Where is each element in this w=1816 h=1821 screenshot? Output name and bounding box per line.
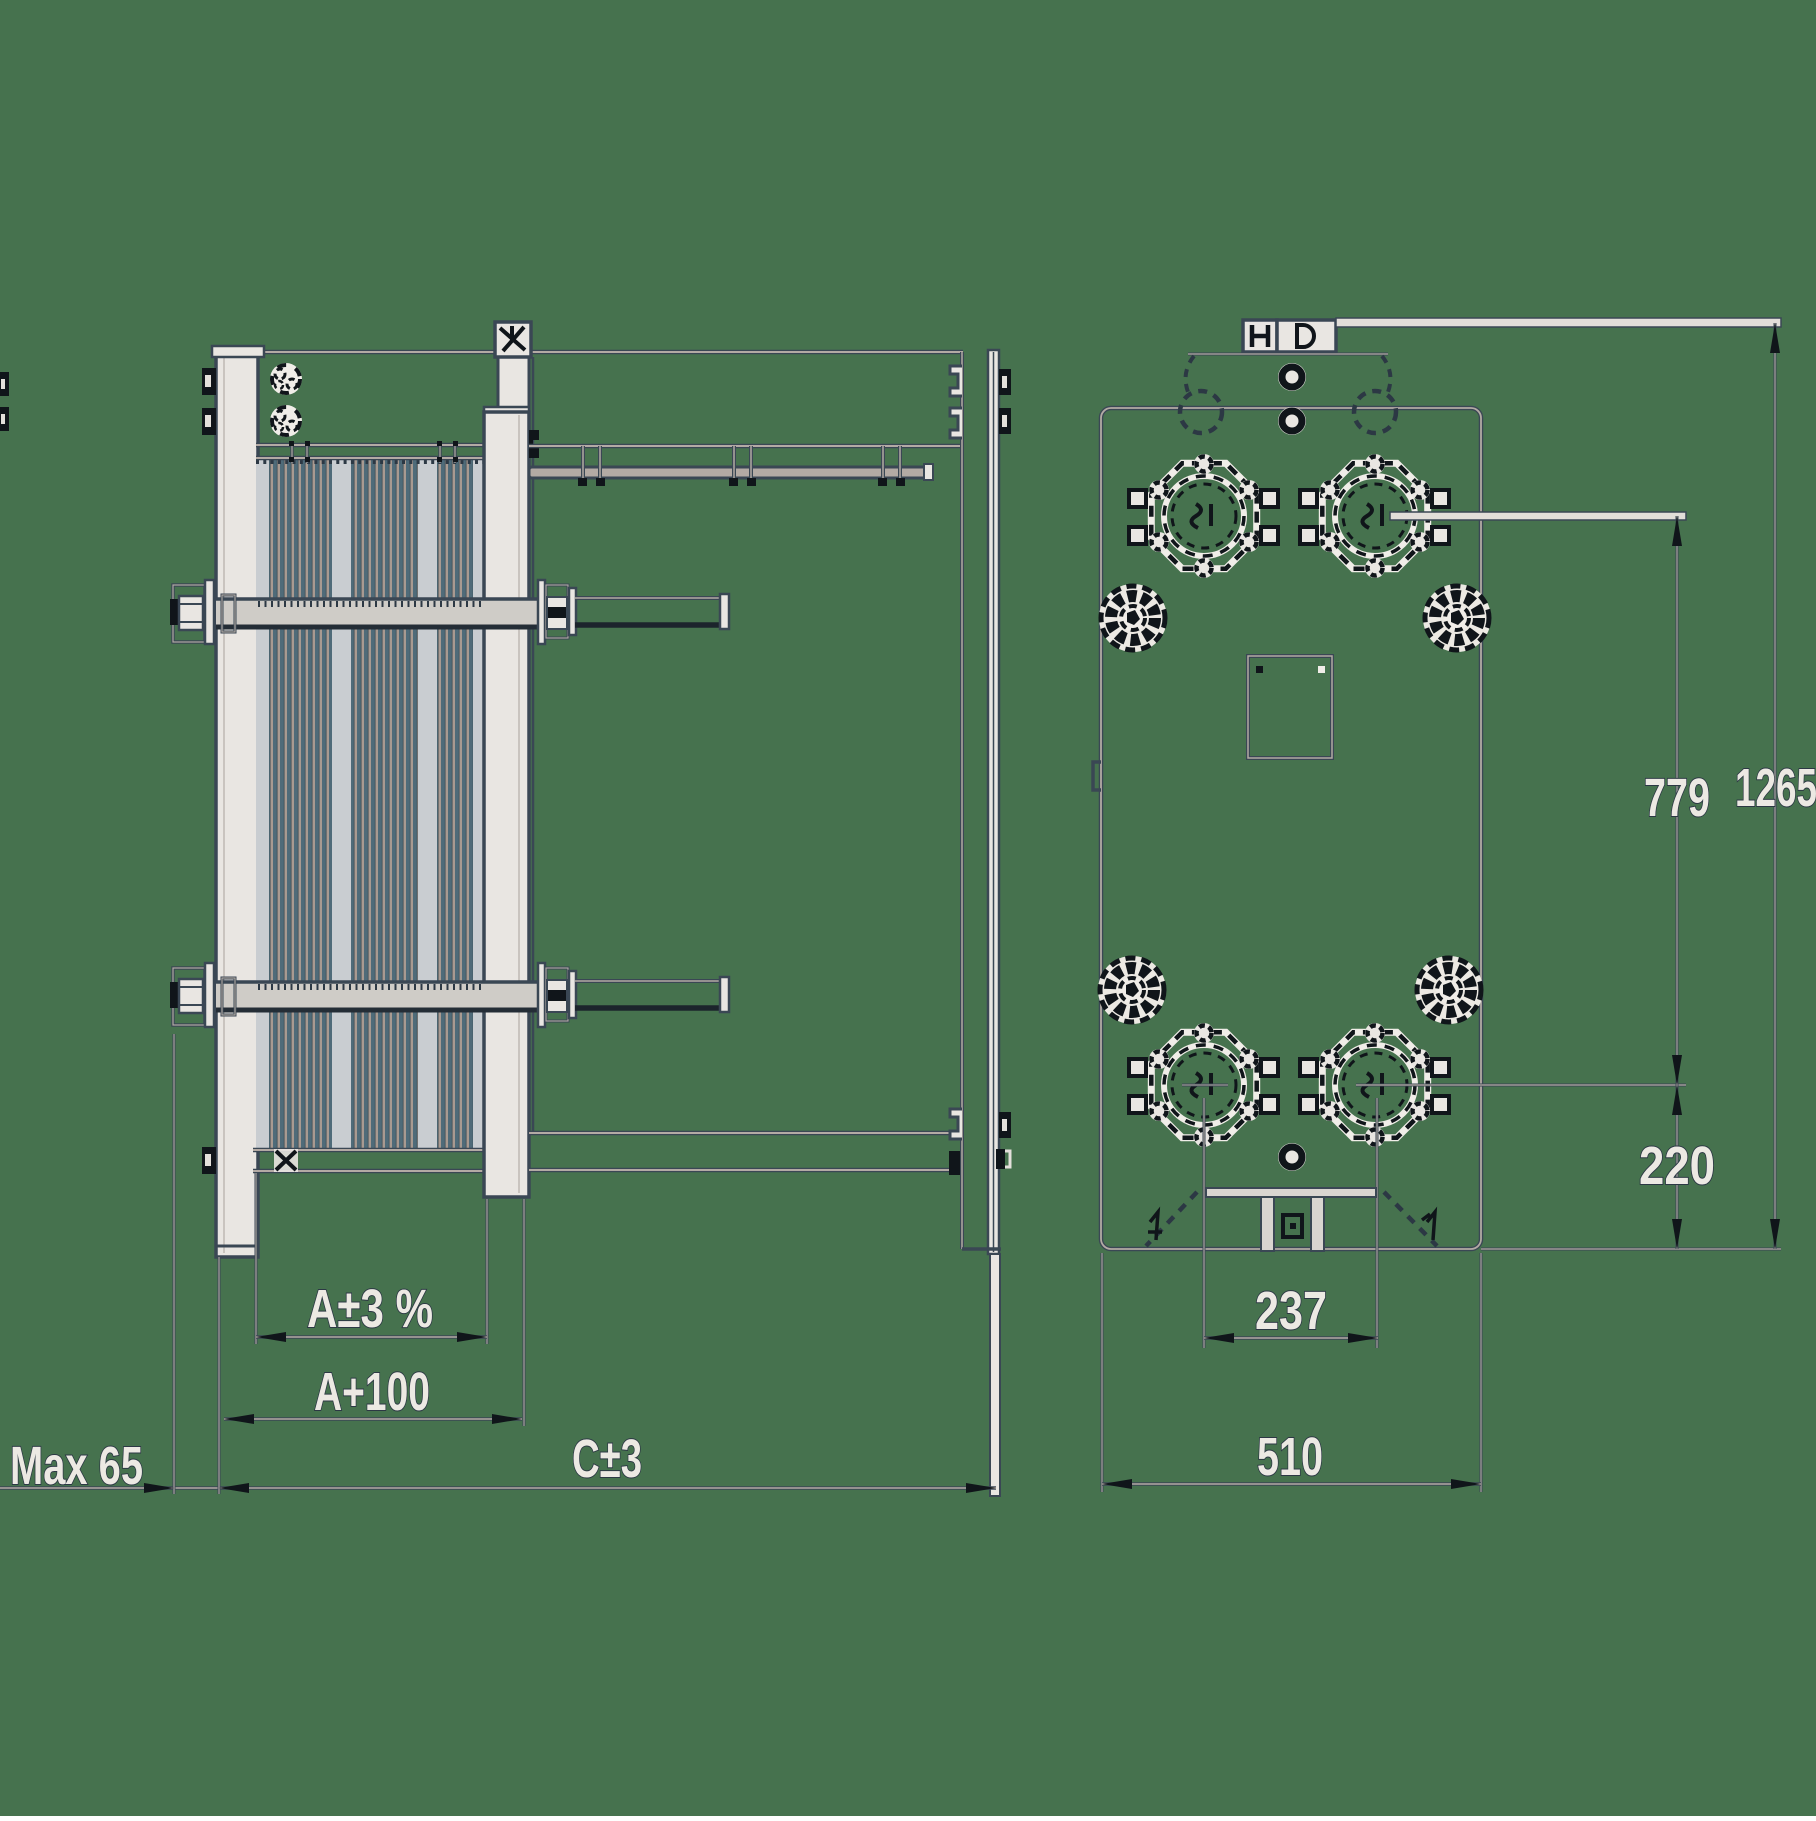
- svg-text:779: 779: [1644, 768, 1710, 828]
- svg-text:A±3 %: A±3 %: [307, 1279, 433, 1339]
- svg-text:A+100: A+100: [314, 1362, 430, 1422]
- svg-text:220: 220: [1639, 1136, 1715, 1196]
- svg-text:Max 65: Max 65: [10, 1436, 143, 1496]
- svg-text:237: 237: [1255, 1281, 1327, 1341]
- svg-text:510: 510: [1257, 1427, 1323, 1487]
- svg-text:C±3: C±3: [572, 1429, 642, 1489]
- svg-text:1265: 1265: [1735, 758, 1816, 818]
